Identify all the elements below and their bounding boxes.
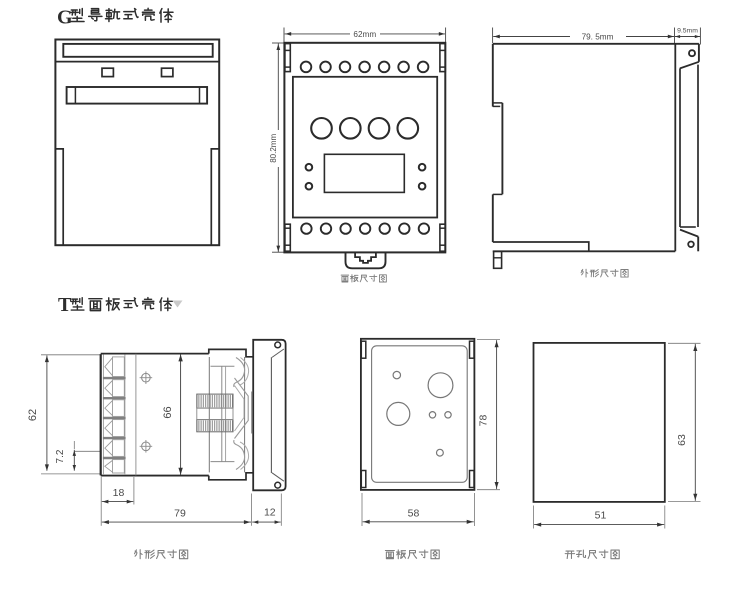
svg-text:51: 51 bbox=[595, 510, 607, 522]
svg-text:62mm: 62mm bbox=[353, 30, 376, 39]
svg-text:18: 18 bbox=[113, 487, 125, 499]
svg-text:12: 12 bbox=[264, 507, 276, 519]
svg-text:80.2mm: 80.2mm bbox=[269, 134, 278, 163]
svg-text:58: 58 bbox=[408, 508, 420, 520]
svg-text:78: 78 bbox=[478, 415, 490, 427]
svg-text:62: 62 bbox=[27, 409, 39, 421]
svg-text:79. 5mm: 79. 5mm bbox=[582, 32, 614, 41]
svg-text:7.2: 7.2 bbox=[55, 449, 66, 463]
svg-text:79: 79 bbox=[174, 507, 186, 519]
svg-text:63: 63 bbox=[676, 434, 688, 446]
svg-text:66: 66 bbox=[162, 406, 174, 418]
svg-text:T: T bbox=[58, 294, 72, 316]
svg-text:9.5mm: 9.5mm bbox=[677, 28, 698, 35]
